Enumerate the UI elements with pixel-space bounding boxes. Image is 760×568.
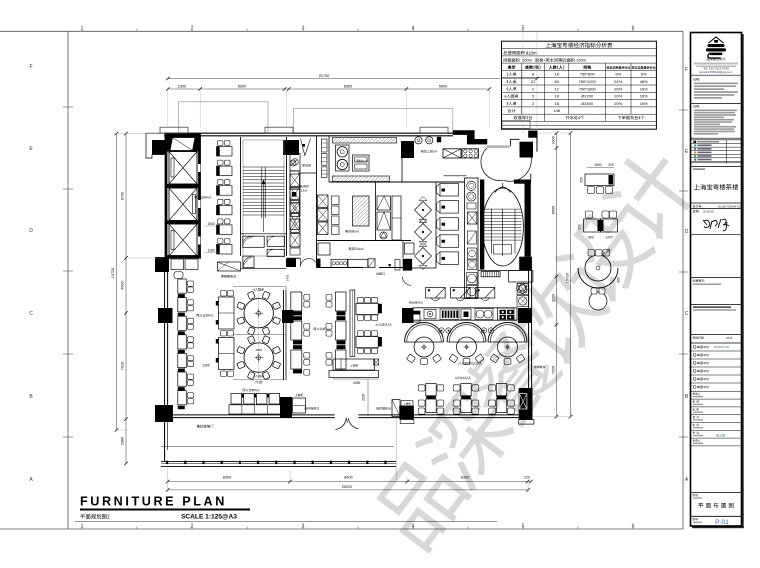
svg-text:25220: 25220 [342,485,353,489]
svg-text:1500: 1500 [255,348,262,352]
svg-text:F: F [29,64,32,70]
svg-text:100m: 100m [576,58,587,63]
svg-text:16%: 16% [640,86,648,91]
svg-text:2018: 2018 [726,336,733,340]
svg-text:2300: 2300 [178,84,186,88]
svg-text:8700: 8700 [121,192,125,200]
svg-text:1200: 1200 [605,236,612,240]
svg-text:1500: 1500 [207,222,215,226]
svg-text:600: 600 [617,277,621,283]
svg-text:750*1200: 750*1200 [579,79,597,84]
svg-text:C: C [685,311,689,317]
svg-text:20%: 20% [614,94,622,99]
svg-text:D: D [29,228,33,234]
svg-text:51%: 51% [614,79,622,84]
svg-text:16: 16 [554,101,559,106]
svg-text:7195: 7195 [255,381,263,385]
svg-text:SCALE 1:125@A3: SCALE 1:125@A3 [181,514,237,521]
svg-text:12: 12 [554,86,559,91]
svg-text:20%: 20% [614,86,622,91]
svg-text:410m: 410m [526,50,537,55]
svg-text:250: 250 [580,177,584,183]
svg-text:20%: 20% [614,101,622,106]
svg-text:320: 320 [608,163,614,167]
svg-text:800: 800 [588,236,594,240]
svg-text:FURNITURE PLAN: FURNITURE PLAN [80,495,227,509]
svg-text:1300: 1300 [202,364,210,368]
svg-text:20180705064738: 20180705064738 [718,204,742,208]
svg-text:8400: 8400 [344,476,352,480]
svg-text:84: 84 [554,79,559,84]
svg-text:2530: 2530 [362,393,366,401]
svg-text:16%: 16% [640,94,648,99]
svg-text:146: 146 [553,108,560,113]
svg-text:8500: 8500 [552,206,556,214]
svg-text:18: 18 [554,94,559,99]
svg-text:1180: 1180 [207,249,214,253]
svg-text:2018.06: 2018.06 [703,210,714,214]
svg-text:2980: 2980 [121,437,125,445]
svg-text:Ø1200: Ø1200 [581,94,594,99]
svg-text:3250: 3250 [353,381,361,385]
svg-text:7020: 7020 [121,362,125,370]
svg-text:2018.07.06: 2018.07.06 [714,345,729,349]
svg-text:48%: 48% [640,79,648,84]
svg-text:Ø1500: Ø1500 [581,101,594,106]
svg-text:1000: 1000 [552,136,556,144]
svg-text:8300: 8300 [344,84,352,88]
svg-text:5%: 5% [641,72,647,77]
svg-text:5900: 5900 [238,84,246,88]
svg-text:1600: 1600 [594,163,601,167]
svg-text:9%: 9% [615,72,621,77]
svg-text:16: 16 [554,72,559,77]
svg-text:4000: 4000 [121,281,125,289]
svg-text:21700: 21700 [319,73,331,78]
svg-text:200m: 200m [522,58,533,63]
svg-text:220: 220 [524,476,530,480]
svg-text:21: 21 [531,79,536,84]
svg-text:Email:1355319@qq.com: Email:1355319@qq.com [700,70,733,74]
svg-text:F: F [685,67,688,73]
svg-text:D: D [685,229,689,235]
svg-text:750*1600: 750*1600 [579,86,597,91]
svg-text:P-01: P-01 [715,519,729,526]
svg-text:5000: 5000 [439,84,447,88]
svg-text:C: C [29,311,33,317]
svg-text:1430: 1430 [286,274,290,281]
svg-text:19720: 19720 [111,268,115,279]
svg-text:7020: 7020 [552,366,556,374]
svg-text:16%: 16% [640,101,648,106]
svg-text:8300: 8300 [223,476,231,480]
svg-text:750*800: 750*800 [580,72,596,77]
